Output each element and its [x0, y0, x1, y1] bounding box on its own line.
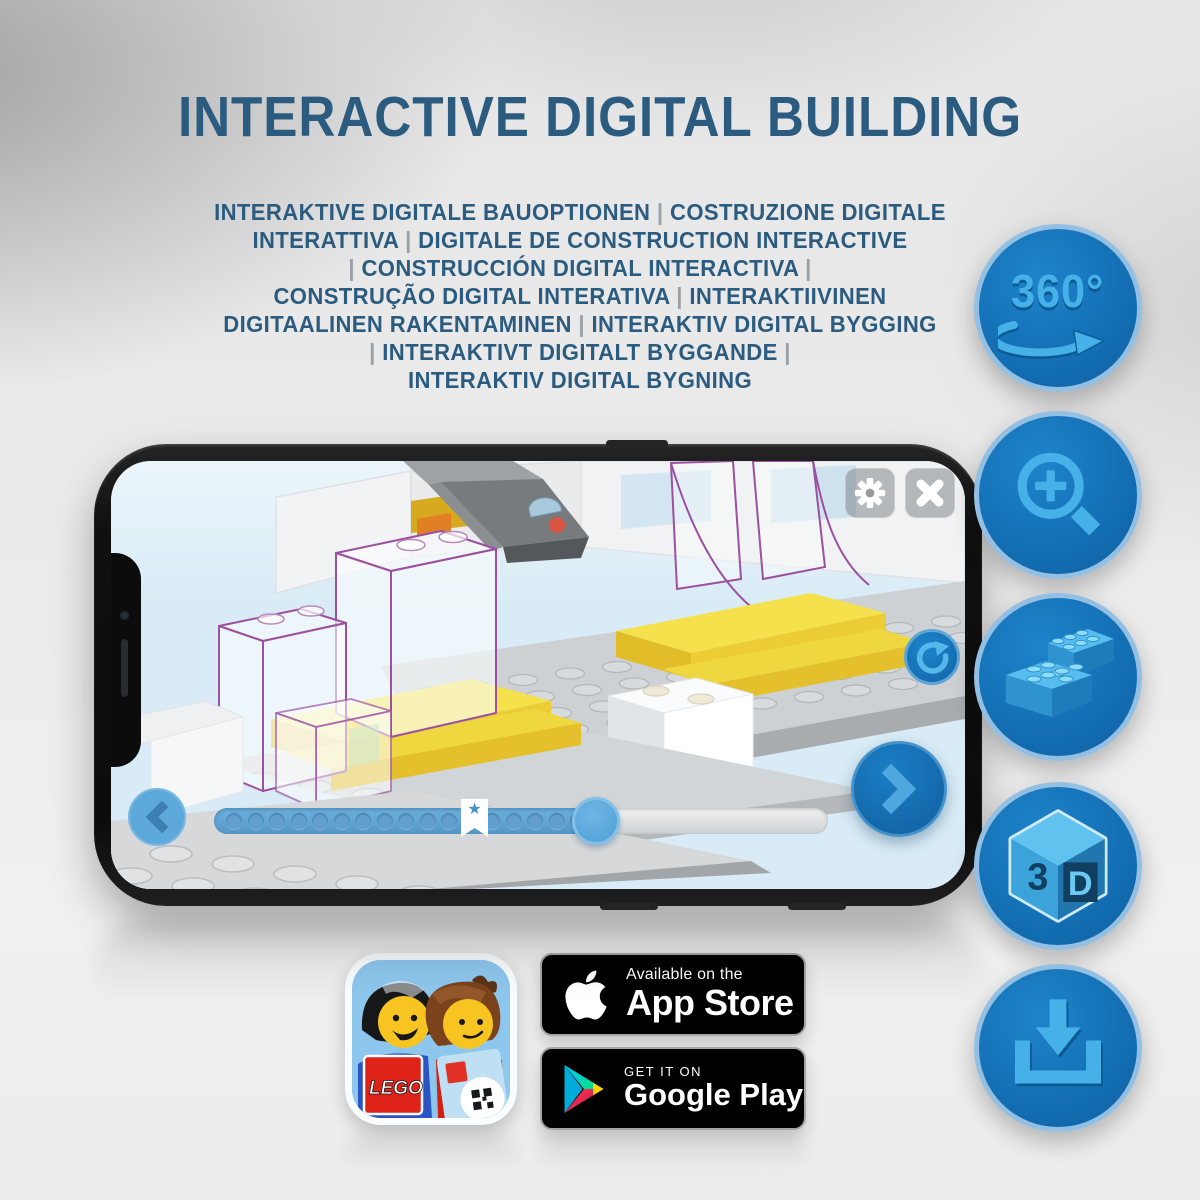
- rotate-icon: [914, 639, 950, 675]
- progress-dot: [269, 813, 285, 829]
- progress-knob[interactable]: [572, 797, 620, 845]
- close-icon: [914, 477, 946, 509]
- settings-button[interactable]: [845, 468, 895, 518]
- next-arrow-icon: [873, 763, 925, 815]
- progress-dot: [398, 813, 414, 829]
- zoom-in-icon: [1003, 440, 1113, 550]
- progress-dot: [506, 813, 522, 829]
- 3d-cube-icon: 3 D: [995, 803, 1121, 929]
- phone-reflection: [94, 916, 982, 1026]
- close-button[interactable]: [905, 468, 955, 518]
- progress-dot: [226, 813, 242, 829]
- progress-dot: [420, 813, 436, 829]
- previous-step-button[interactable]: [128, 788, 186, 846]
- phone-mockup: ★: [94, 444, 982, 906]
- google-play-logo-icon: [560, 1062, 608, 1116]
- subtitle-line: INTERATTIVA | DIGITALE DE CONSTRUCTION I…: [167, 226, 993, 254]
- progress-dot: [248, 813, 264, 829]
- gear-icon: [853, 476, 887, 510]
- subtitle-line: | INTERAKTIVT DIGITALT BYGGANDE |: [167, 338, 993, 366]
- progress-dot: [291, 813, 307, 829]
- svg-text:D: D: [1068, 865, 1093, 903]
- earpiece-speaker: [121, 639, 128, 697]
- phone-volume-up-button: [600, 903, 658, 910]
- feature-zoom: [974, 411, 1142, 579]
- progress-dot: [441, 813, 457, 829]
- front-camera: [120, 611, 129, 620]
- subtitle-line: DIGITAALINEN RAKENTAMINEN | INTERAKTIV D…: [167, 310, 993, 338]
- back-arrow-icon: [140, 800, 174, 834]
- app-screen: ★: [111, 461, 965, 889]
- phone-power-button: [606, 440, 668, 447]
- phone-notch: [111, 553, 141, 767]
- progress-dot: [527, 813, 543, 829]
- 360-swoosh-arrow: [998, 318, 1118, 362]
- 360-rotation-icon: 360°: [1011, 264, 1104, 318]
- subtitle-line: CONSTRUÇÃO DIGITAL INTERATIVA | INTERAKT…: [167, 282, 993, 310]
- progress-dot: [334, 813, 350, 829]
- svg-text:3: 3: [1027, 856, 1048, 898]
- progress-dot: [377, 813, 393, 829]
- download-icon: [1000, 990, 1116, 1106]
- badge-reflection: [540, 1140, 806, 1174]
- phone-volume-down-button: [788, 903, 846, 910]
- progress-dot: [355, 813, 371, 829]
- feature-360: 360°: [974, 224, 1142, 392]
- subtitle-line: INTERAKTIV DIGITAL BYGNING: [167, 366, 993, 394]
- google-play-label: Google Play: [624, 1079, 803, 1112]
- next-step-button[interactable]: [851, 741, 947, 837]
- feature-bricks: [974, 593, 1142, 761]
- rotate-model-button[interactable]: [904, 629, 960, 685]
- feature-3d: 3 D: [974, 782, 1142, 950]
- google-play-badge[interactable]: GET IT ON Google Play: [540, 1047, 806, 1130]
- progress-dot: [549, 813, 565, 829]
- svg-text:LEGO: LEGO: [369, 1078, 423, 1099]
- subtitle-line: | CONSTRUCCIÓN DIGITAL INTERACTIVA |: [167, 254, 993, 282]
- subtitle-block: INTERAKTIVE DIGITALE BAUOPTIONEN | COSTR…: [150, 198, 1010, 394]
- feature-download: [974, 964, 1142, 1132]
- app-icon-reflection: [345, 1136, 517, 1176]
- progress-fill: [214, 808, 593, 834]
- lego-bricks-icon: [998, 617, 1118, 737]
- build-progress-slider[interactable]: ★: [214, 808, 828, 834]
- subtitle-line: INTERAKTIVE DIGITALE BAUOPTIONEN | COSTR…: [167, 198, 993, 226]
- progress-dot: [312, 813, 328, 829]
- page-title: INTERACTIVE DIGITAL BUILDING: [60, 84, 1140, 150]
